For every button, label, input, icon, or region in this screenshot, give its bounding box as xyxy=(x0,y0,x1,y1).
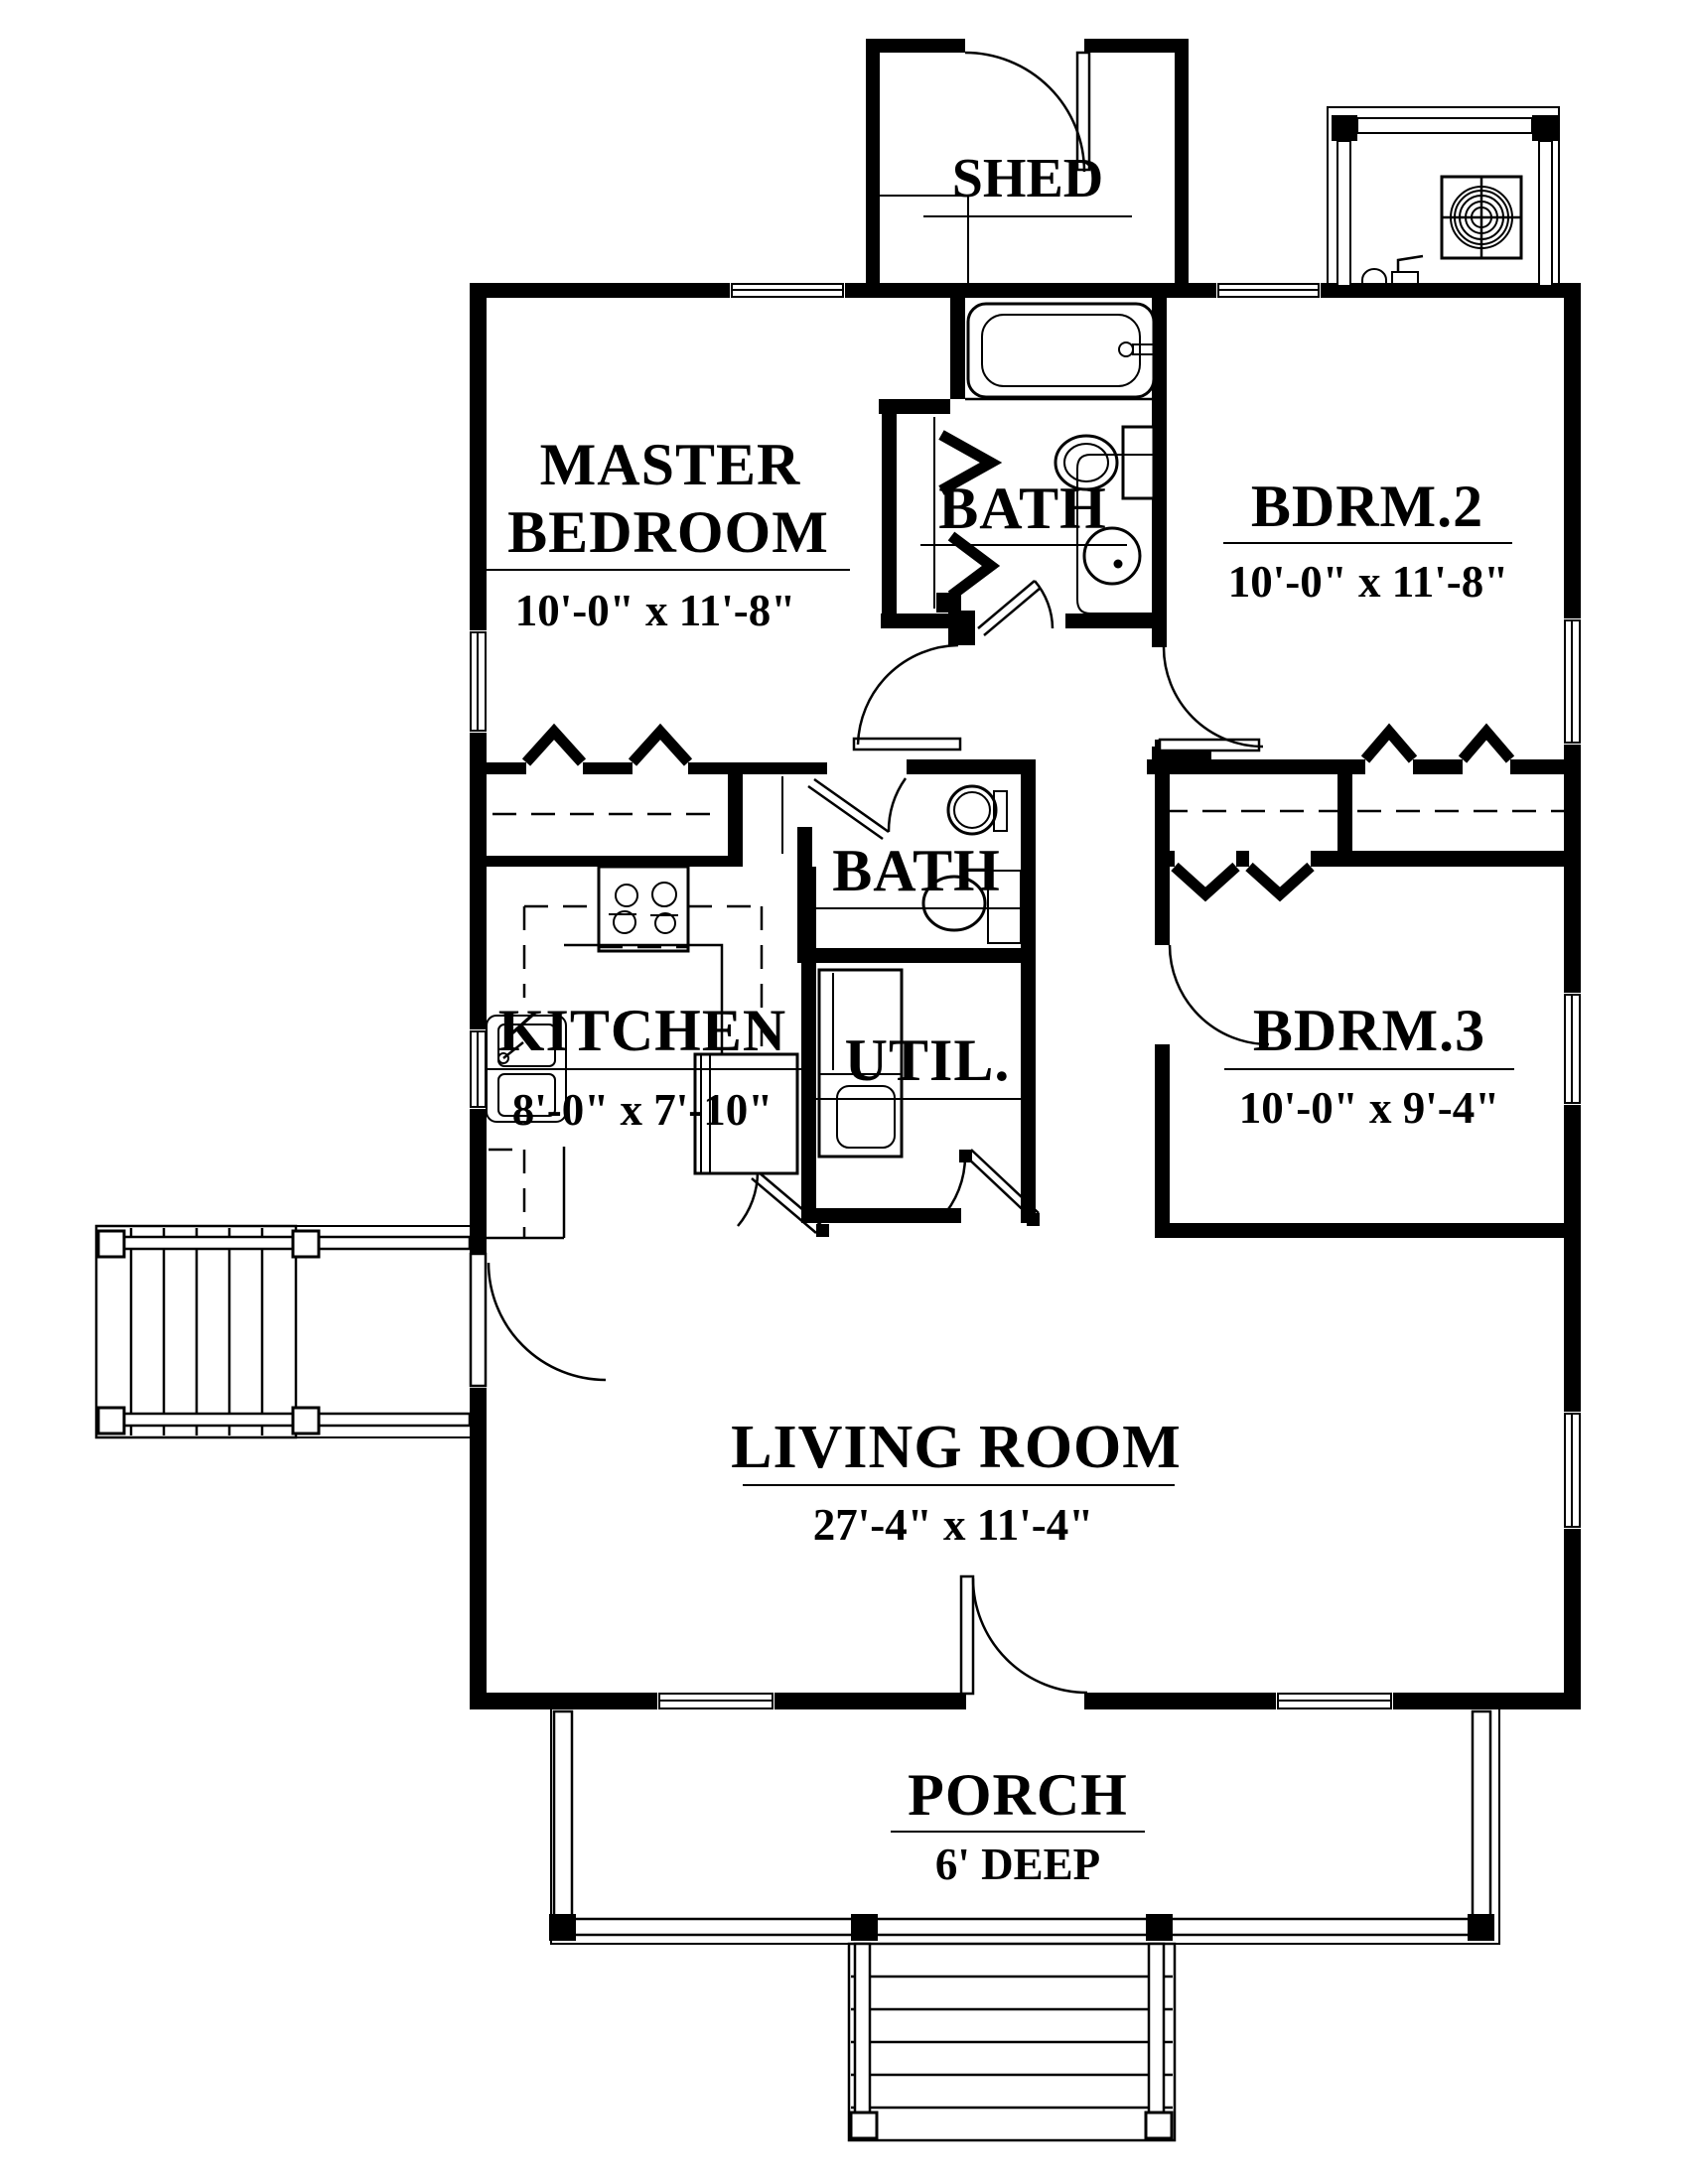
label-util: UTIL. xyxy=(816,1027,1033,1099)
toilet-icon xyxy=(948,786,1007,834)
floor-plan-sheet: SHED MASTER BEDROOM 10'-0" x 11'-8" BATH… xyxy=(0,0,1688,2184)
window-master-top xyxy=(732,284,843,297)
label-master-bedroom: MASTER BEDROOM 10'-0" x 11'-8" xyxy=(487,432,850,635)
bifold-door-icon xyxy=(1365,732,1413,759)
bifold-door-icon xyxy=(1249,867,1311,894)
window-kitchen-left xyxy=(471,1031,486,1107)
porch-post xyxy=(1146,1914,1173,1941)
room-title: BATH xyxy=(938,476,1107,541)
porch-post xyxy=(549,1914,576,1941)
bifold-door-icon xyxy=(1463,732,1510,759)
label-living-room: LIVING ROOM 27'-4" x 11'-4" xyxy=(731,1414,1182,1550)
gas-meter-icon xyxy=(1362,256,1423,286)
window-bdrm2-top xyxy=(1218,284,1319,297)
front-door xyxy=(961,1576,1087,1694)
room-dimensions: 10'-0" x 11'-8" xyxy=(1228,557,1508,607)
bathtub-icon xyxy=(968,304,1154,397)
side-stairs xyxy=(96,1226,470,1437)
window-living-bottom-right xyxy=(1278,1694,1391,1708)
front-stairs xyxy=(849,1944,1175,2140)
stove-icon xyxy=(599,867,688,951)
window-master-left xyxy=(471,632,486,731)
room-title: BATH xyxy=(832,838,1001,903)
room-dimensions: 27'-4" x 11'-4" xyxy=(813,1500,1093,1550)
room-dimensions: 8'-0" x 7'-10" xyxy=(512,1085,773,1135)
label-shed: SHED xyxy=(923,148,1132,216)
room-title: SHED xyxy=(952,148,1104,209)
room-title: MASTER xyxy=(540,432,801,497)
room-title: KITCHEN xyxy=(498,998,786,1063)
room-title: UTIL. xyxy=(845,1027,1011,1093)
porch-post xyxy=(851,1914,878,1941)
label-bdrm3: BDRM.3 10'-0" x 9'-4" xyxy=(1224,998,1514,1133)
window-bdrm3-right xyxy=(1565,995,1580,1103)
window-bdrm2-right xyxy=(1565,620,1580,743)
window-living-bottom-left xyxy=(659,1694,773,1708)
room-labels: SHED MASTER BEDROOM 10'-0" x 11'-8" BATH… xyxy=(487,148,1514,1889)
ac-condenser-icon xyxy=(1442,177,1521,258)
porch-post xyxy=(1468,1914,1494,1941)
room-dimensions: 10'-0" x 9'-4" xyxy=(1239,1083,1499,1133)
window-living-right xyxy=(1565,1414,1580,1527)
bifold-door-icon xyxy=(1175,867,1236,894)
label-bath1: BATH xyxy=(920,476,1127,545)
bath2-door xyxy=(808,778,906,839)
label-porch: PORCH 6' DEEP xyxy=(891,1762,1145,1889)
room-title: PORCH xyxy=(908,1762,1128,1828)
master-bedroom-door xyxy=(854,645,960,750)
room-dimensions: 6' DEEP xyxy=(935,1840,1100,1889)
floor-plan-drawing: SHED MASTER BEDROOM 10'-0" x 11'-8" BATH… xyxy=(0,0,1688,2184)
bath1-door xyxy=(978,581,1053,635)
side-door xyxy=(471,1254,606,1386)
bifold-door-icon xyxy=(526,732,582,762)
room-title: BDRM.2 xyxy=(1251,474,1483,539)
label-bath2: BATH xyxy=(814,838,1021,908)
room-title: BEDROOM xyxy=(507,499,829,565)
room-title: LIVING ROOM xyxy=(731,1414,1182,1481)
room-title: BDRM.3 xyxy=(1253,998,1485,1063)
label-bdrm2: BDRM.2 10'-0" x 11'-8" xyxy=(1223,474,1512,607)
ac-pad xyxy=(1328,107,1559,286)
bdrm2-door xyxy=(1160,647,1263,751)
bifold-door-icon xyxy=(633,732,688,762)
room-dimensions: 10'-0" x 11'-8" xyxy=(515,586,795,635)
